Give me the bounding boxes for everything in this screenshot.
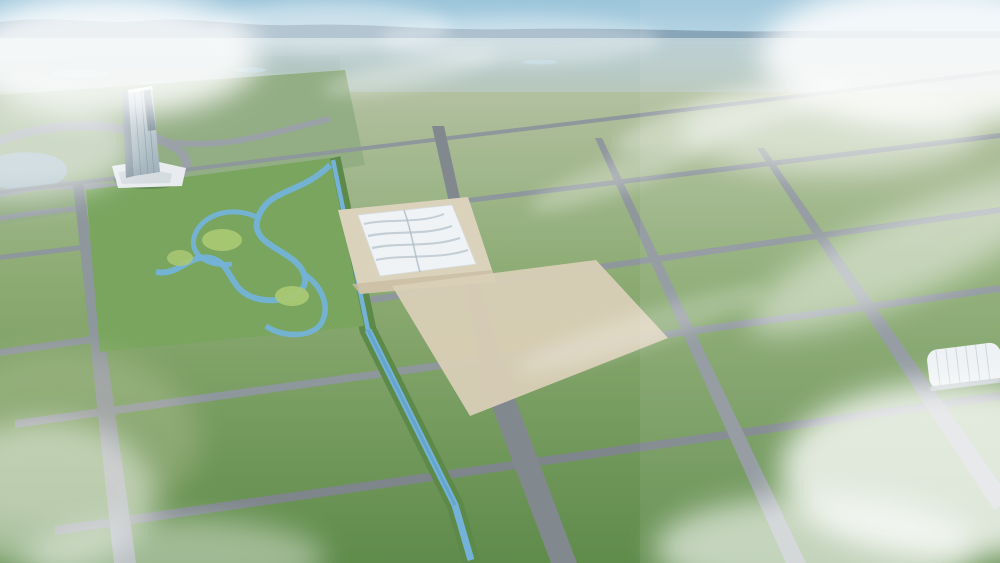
- aerial-city-render: [0, 0, 1000, 563]
- scene-canvas: [0, 0, 1000, 563]
